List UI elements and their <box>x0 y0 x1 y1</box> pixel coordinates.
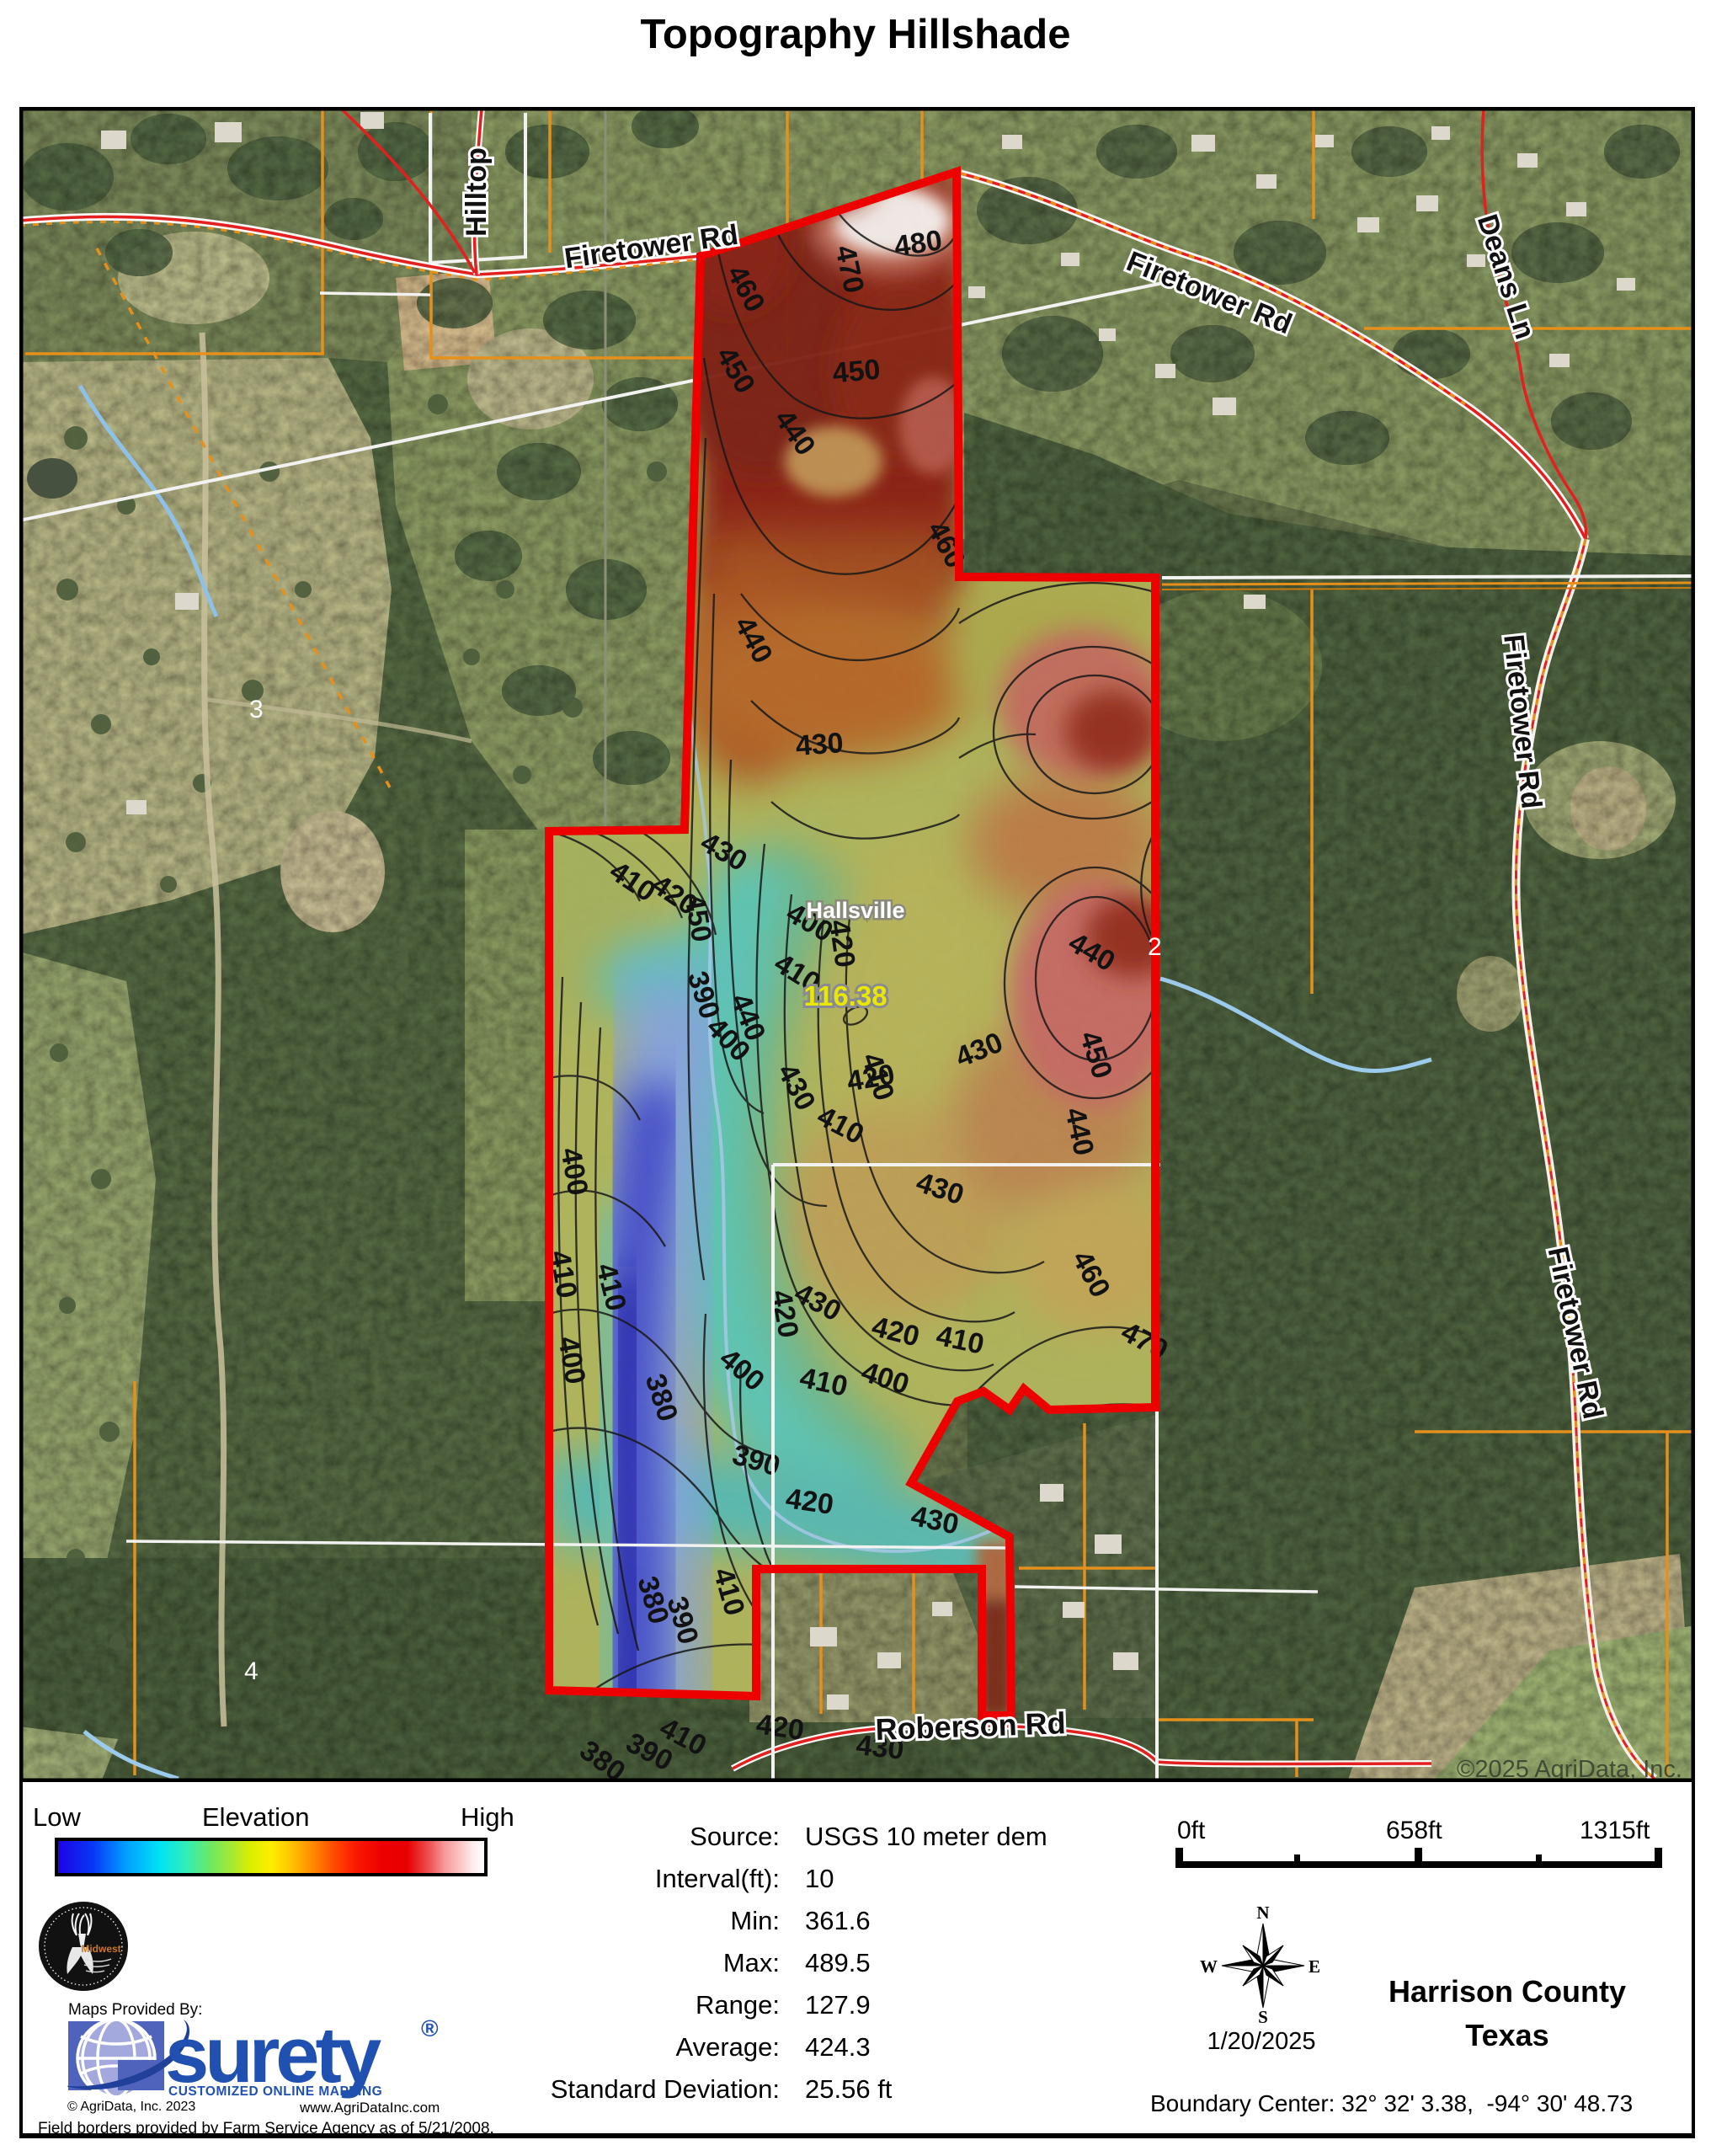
svg-text:®: ® <box>421 2018 439 2041</box>
svg-text:N: N <box>1256 1903 1269 1923</box>
svg-text:420: 420 <box>754 1708 806 1747</box>
svg-text:450: 450 <box>831 354 882 390</box>
svg-text:116.38: 116.38 <box>803 980 887 1011</box>
svg-text:2: 2 <box>1148 933 1162 961</box>
svg-text:Midwest: Midwest <box>81 1943 120 1955</box>
svg-text:W: W <box>1200 1956 1218 1977</box>
svg-text:Roberson Rd: Roberson Rd <box>875 1705 1066 1747</box>
svg-text:S: S <box>1258 2007 1268 2027</box>
svg-text:E: E <box>1309 1956 1320 1977</box>
svg-text:Hilltop: Hilltop <box>461 147 493 237</box>
svg-text:Hallsville: Hallsville <box>806 898 904 923</box>
svg-text:480: 480 <box>893 224 944 263</box>
svg-text:4: 4 <box>244 1657 259 1685</box>
svg-text:420: 420 <box>784 1482 835 1521</box>
svg-text:3: 3 <box>249 696 264 723</box>
svg-text:©2025 AgriData, Inc.: ©2025 AgriData, Inc. <box>1457 1756 1682 1782</box>
svg-text:430: 430 <box>795 727 845 762</box>
svg-text:CUSTOMIZED ONLINE MAPPING: CUSTOMIZED ONLINE MAPPING <box>168 2084 382 2099</box>
